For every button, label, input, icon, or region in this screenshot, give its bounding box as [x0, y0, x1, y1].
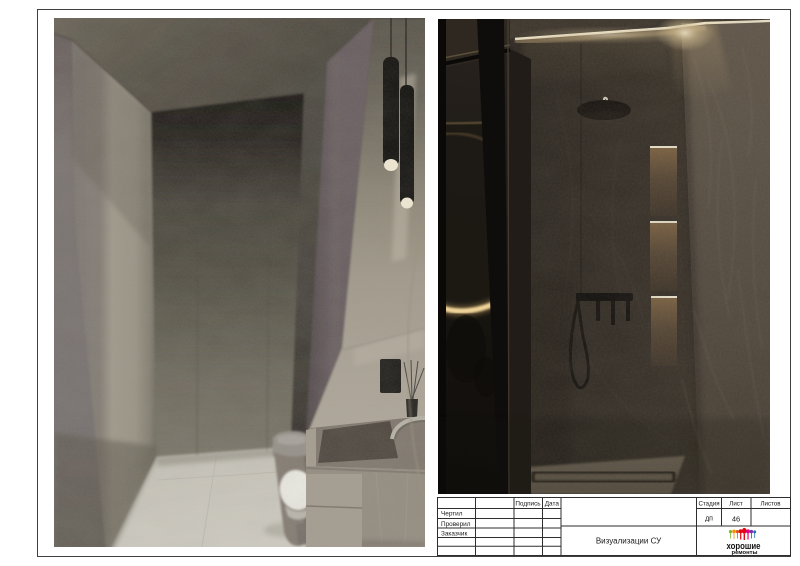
svg-text:Лист: Лист — [729, 501, 743, 508]
svg-text:Заказчик: Заказчик — [441, 531, 467, 538]
svg-text:Листов: Листов — [760, 501, 781, 508]
svg-text:Чертил: Чертил — [441, 511, 463, 518]
svg-text:Дата: Дата — [545, 501, 560, 508]
svg-text:Визуализации СУ: Визуализации СУ — [596, 537, 662, 546]
svg-text:Подпись: Подпись — [515, 501, 541, 508]
svg-text:Проверил: Проверил — [441, 521, 471, 528]
svg-text:Стадия: Стадия — [698, 501, 719, 508]
svg-text:46: 46 — [732, 515, 740, 524]
svg-text:ремонты: ремонты — [732, 550, 758, 556]
svg-text:дп: дп — [705, 516, 713, 523]
